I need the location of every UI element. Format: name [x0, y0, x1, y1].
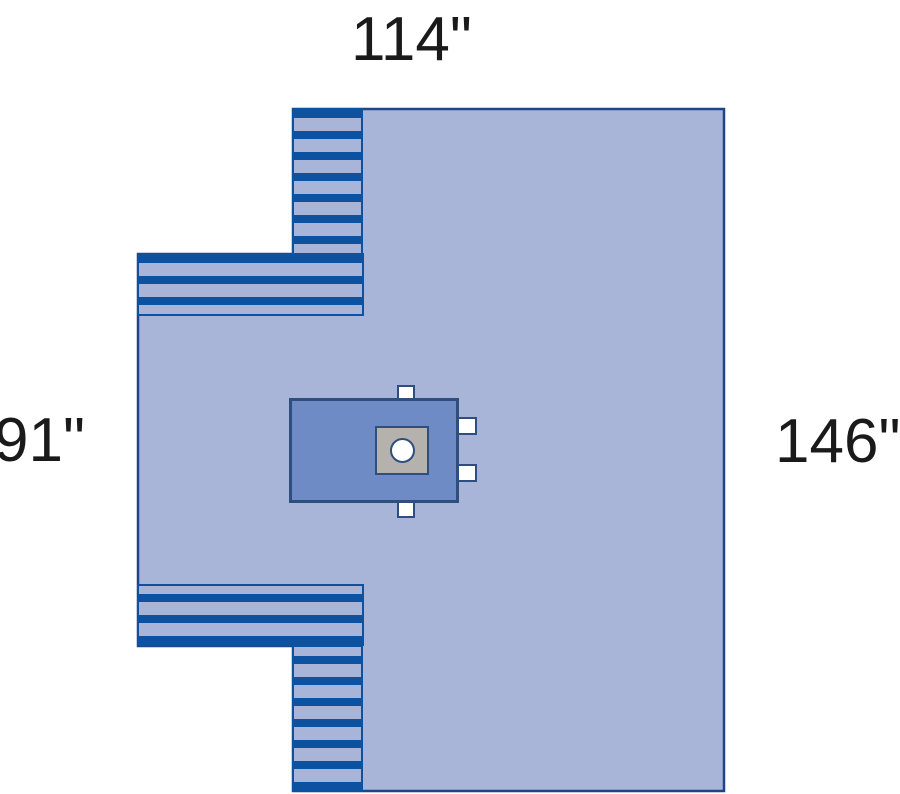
fold-stripes-bottom-vertical: [292, 645, 363, 792]
dimension-label-right: 146": [775, 411, 900, 473]
fenestration-panel: [289, 398, 459, 503]
dimension-label-top: 114": [351, 9, 472, 71]
fenestration-hole: [390, 438, 415, 463]
dimension-label-left: 91": [0, 410, 85, 472]
drape-body: [0, 0, 900, 794]
fold-stripes-top-vertical: [292, 108, 363, 255]
fold-stripes-upper-arm: [137, 253, 364, 316]
drape-diagram: 114" 91" 146": [0, 0, 900, 794]
fold-stripes-lower-arm: [137, 584, 364, 646]
